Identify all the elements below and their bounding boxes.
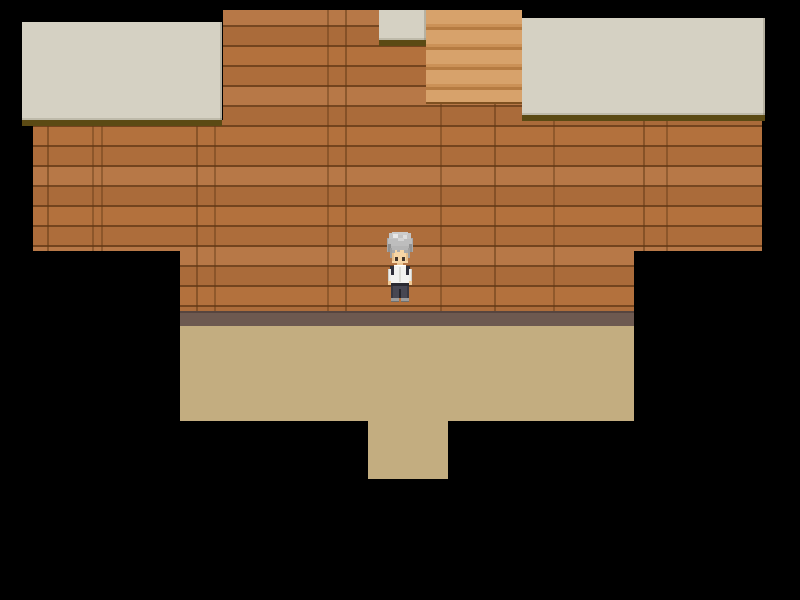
- pants: [391, 283, 409, 298]
- shoes: [391, 298, 409, 302]
- roof-panel-small: [379, 10, 426, 40]
- player-character[interactable]: [385, 232, 415, 303]
- roof-panel-right: [522, 18, 765, 115]
- floor-main[interactable]: [180, 326, 634, 421]
- wall-baseboard: [180, 311, 634, 326]
- staircase[interactable]: [426, 10, 522, 104]
- floor-doorway-exit[interactable]: [368, 421, 448, 479]
- shirt: [388, 265, 412, 285]
- roof-panel-left: [22, 22, 222, 120]
- player-character-sprite: [385, 232, 415, 303]
- roof-left-shadow: [22, 120, 222, 126]
- roof-right-shadow: [522, 115, 765, 121]
- roof-small-shadow: [379, 40, 426, 46]
- face: [390, 246, 410, 266]
- game-viewport: [0, 0, 800, 600]
